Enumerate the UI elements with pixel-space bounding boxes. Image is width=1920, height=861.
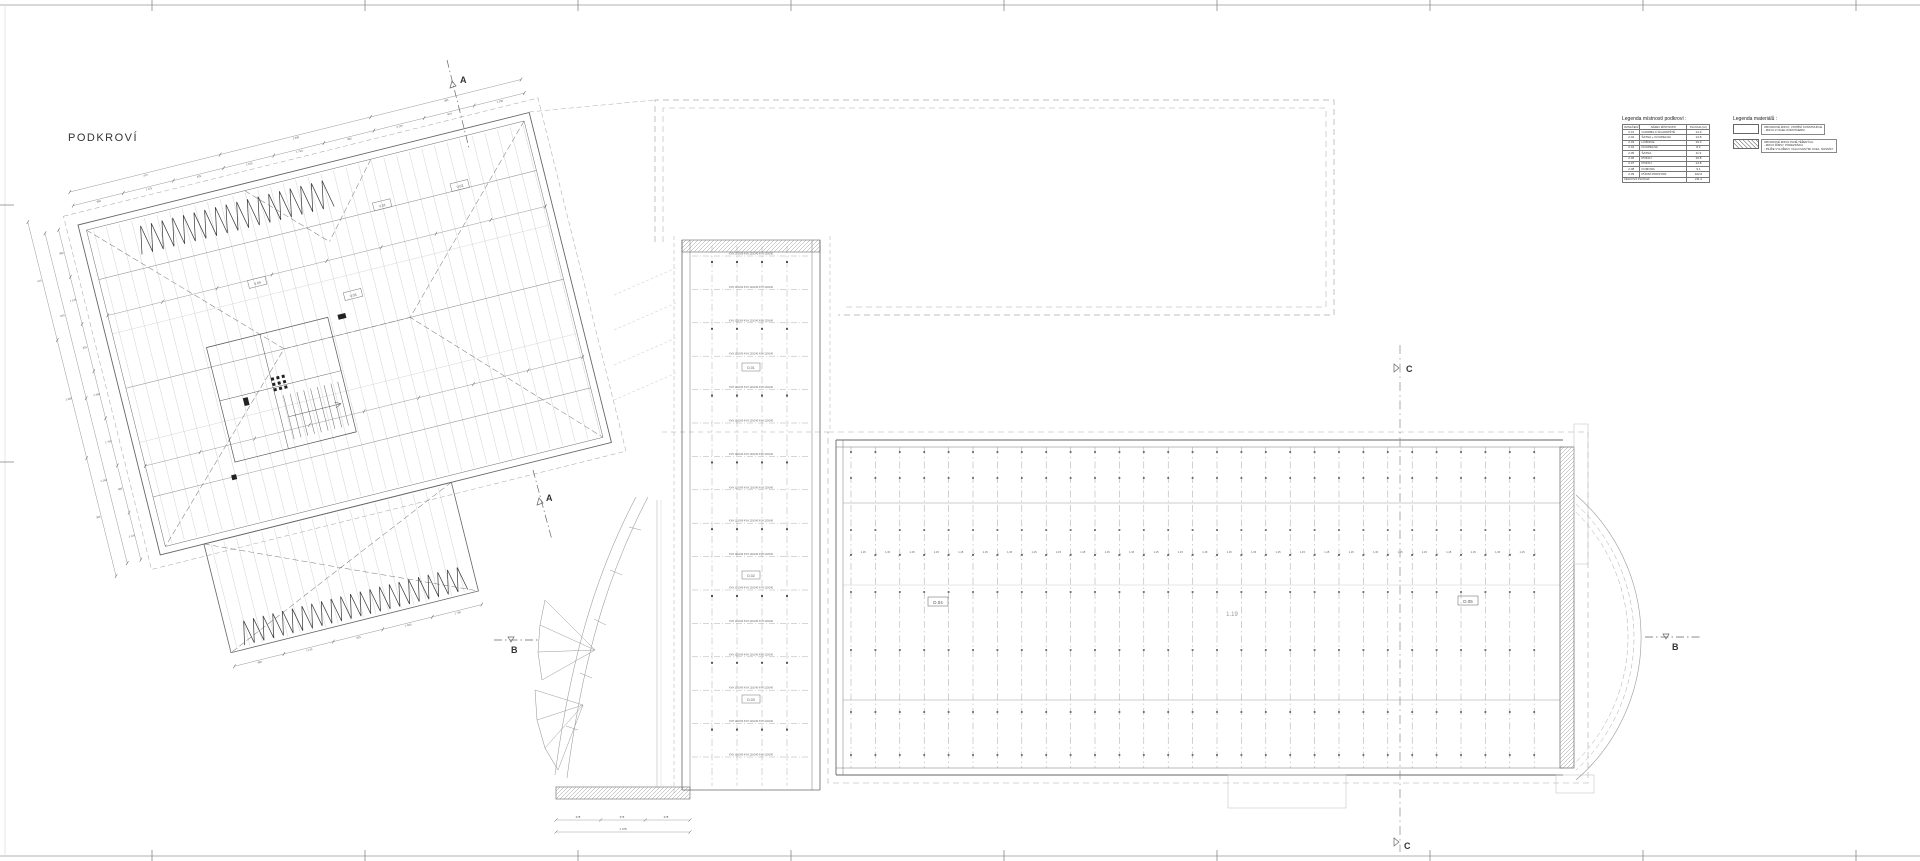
hatch-line xyxy=(1560,701,1574,715)
bay-rung xyxy=(594,619,606,625)
axis-node xyxy=(875,477,877,479)
beam-mark-d05: D.05 xyxy=(1463,599,1473,604)
dim-text: 625 xyxy=(356,635,362,640)
junction-line xyxy=(614,268,676,295)
hatch-line xyxy=(1560,665,1574,679)
section-a-label-mid: A xyxy=(546,493,553,503)
joist-label: KVH 120/240 KVH 120/240 KVH 120/240 xyxy=(729,253,774,256)
axis-node xyxy=(899,591,901,593)
axis-node xyxy=(1070,529,1072,531)
spacing-dim: 1,15 xyxy=(1080,550,1086,554)
hatch-line xyxy=(1560,549,1574,563)
axis-node xyxy=(850,451,852,453)
axis-node xyxy=(736,328,738,330)
material-description-line: - PILÍŘE VYLOŽENY VÁLCOVANÝMI OCEL. NOSN… xyxy=(1764,148,1834,151)
axis-node xyxy=(1216,711,1218,713)
hatch-line xyxy=(1560,449,1574,463)
hatch-line xyxy=(1560,517,1574,531)
hatch-line xyxy=(1571,765,1574,768)
axis-node xyxy=(1045,649,1047,651)
axis-node xyxy=(972,649,974,651)
axis-node xyxy=(1241,529,1243,531)
axis-node xyxy=(1363,477,1365,479)
hatch-line xyxy=(1560,617,1574,631)
spacing-dim: 1,15 xyxy=(861,550,867,554)
bay-rung xyxy=(629,527,641,530)
hatch-line xyxy=(1560,601,1574,615)
axis-node xyxy=(1119,649,1121,651)
axis-node xyxy=(850,754,852,756)
axis-node xyxy=(1338,477,1340,479)
bottom-dim-total: 1 378 xyxy=(620,827,627,831)
hatch-line xyxy=(1560,605,1574,619)
dim-tick xyxy=(282,652,286,656)
axis-node xyxy=(1363,649,1365,651)
material-description: OBVODOVÉ ZDIVO PLNĚ TĚŽENÝCH- ZDIVO ŘÍMS… xyxy=(1761,139,1837,153)
axis-node xyxy=(1094,754,1096,756)
spacing-dim: 1,15 xyxy=(1129,550,1135,554)
axis-node xyxy=(786,461,788,463)
hatch-line xyxy=(1560,721,1574,735)
junction-line xyxy=(614,373,676,400)
joist-label: KVH 120/240 KVH 120/240 KVH 120/240 xyxy=(729,754,774,757)
dim-text: 980 xyxy=(96,199,102,204)
grid-dot xyxy=(277,381,281,385)
axis-node xyxy=(1241,451,1243,453)
rafter xyxy=(312,519,338,624)
hatch-line xyxy=(1560,553,1574,567)
apse-end xyxy=(1576,495,1641,780)
hatch-line xyxy=(1560,593,1574,607)
dim-tick xyxy=(430,615,434,619)
axis-node xyxy=(1021,477,1023,479)
joist-label: KVH 120/240 KVH 120/240 KVH 120/240 xyxy=(729,553,774,556)
axis-node xyxy=(997,649,999,651)
axis-node xyxy=(1192,477,1194,479)
axis-node xyxy=(1533,649,1535,651)
bay-curve xyxy=(538,600,545,680)
axis-node xyxy=(1387,649,1389,651)
axis-node xyxy=(1387,591,1389,593)
section-b-label-left: B xyxy=(511,645,518,655)
axis-node xyxy=(923,649,925,651)
terrace-below xyxy=(1228,775,1346,808)
axis-node xyxy=(1265,754,1267,756)
dim-tick xyxy=(480,603,484,607)
hatch-line xyxy=(1560,725,1574,739)
axis-node xyxy=(1485,711,1487,713)
hatch-line xyxy=(1560,473,1574,487)
dim-tick xyxy=(68,275,72,279)
dim-tick xyxy=(369,115,373,119)
axis-node xyxy=(997,754,999,756)
hatch-line xyxy=(1560,513,1574,527)
axis-node xyxy=(1533,529,1535,531)
axis-node xyxy=(786,328,788,330)
section-a-line-top xyxy=(447,60,469,148)
hatch-line xyxy=(1560,461,1574,475)
hatch-line xyxy=(1560,633,1574,647)
axis-node xyxy=(1143,591,1145,593)
axis-node xyxy=(736,261,738,263)
curved-stair-bay xyxy=(535,497,661,788)
axis-node xyxy=(1216,754,1218,756)
axis-node xyxy=(923,477,925,479)
hatch-line xyxy=(1560,501,1574,515)
joist-label: KVH 120/240 KVH 120/240 KVH 120/240 xyxy=(729,587,774,590)
axis-node xyxy=(1387,477,1389,479)
axis-node xyxy=(1021,451,1023,453)
axis-node xyxy=(1289,711,1291,713)
axis-node xyxy=(1289,649,1291,651)
axis-node xyxy=(850,477,852,479)
axis-node xyxy=(850,529,852,531)
axis-node xyxy=(1167,591,1169,593)
dim-tick xyxy=(417,396,421,400)
hatch-line xyxy=(1560,645,1574,659)
beam-mark-d04: D.04 xyxy=(933,600,943,605)
axis-node xyxy=(923,711,925,713)
hatch-line xyxy=(1560,585,1574,599)
hatch-line xyxy=(1560,577,1574,591)
dim-tick xyxy=(422,116,426,120)
section-b-label-right: B xyxy=(1672,642,1679,652)
axis-node xyxy=(948,451,950,453)
axis-node xyxy=(1265,711,1267,713)
hatch-line xyxy=(682,240,686,244)
dim-text: 475 xyxy=(143,173,149,178)
hatch-line xyxy=(1560,497,1574,511)
axis-node xyxy=(1143,477,1145,479)
dim-tick xyxy=(26,220,30,224)
rafter xyxy=(375,503,401,608)
hatch-line xyxy=(1560,457,1574,471)
wall-band xyxy=(682,240,820,252)
axis-node xyxy=(1314,649,1316,651)
joist-label: KVH 120/240 KVH 120/240 KVH 120/240 xyxy=(729,720,774,723)
axis-node xyxy=(1289,451,1291,453)
hatch-line xyxy=(1560,689,1574,703)
axis-node xyxy=(1436,451,1438,453)
plan-strip-junction xyxy=(529,100,676,400)
section-markers: A A B B C C xyxy=(447,60,1700,852)
dim-tick xyxy=(325,259,329,263)
dim-tick xyxy=(522,91,526,95)
axis-node xyxy=(1143,711,1145,713)
axis-node xyxy=(1094,477,1096,479)
dim-text: 900 xyxy=(117,486,123,491)
bottom-dim: 278 xyxy=(664,815,669,819)
axis-node xyxy=(736,528,738,530)
element-mark: D.03 xyxy=(747,698,754,702)
dim-tick xyxy=(80,322,84,326)
axis-node xyxy=(1070,649,1072,651)
axis-node xyxy=(1363,591,1365,593)
axis-node xyxy=(899,711,901,713)
section-c-label-bottom: C xyxy=(1404,841,1411,851)
element-mark: V.02 xyxy=(456,184,464,190)
fan-line xyxy=(535,690,583,705)
axis-node xyxy=(923,754,925,756)
dim-text: 2 450 xyxy=(245,161,253,167)
axis-node xyxy=(1411,711,1413,713)
axis-node xyxy=(711,328,713,330)
chimney-block xyxy=(243,397,250,406)
rafter xyxy=(438,488,464,593)
axis-node xyxy=(1387,529,1389,531)
dim-tick xyxy=(57,228,61,232)
axis-node xyxy=(997,477,999,479)
axis-node xyxy=(1289,529,1291,531)
hatch-line xyxy=(1560,673,1574,687)
rafter xyxy=(413,494,439,599)
axis-node xyxy=(1045,711,1047,713)
spacing-dim: 1,15 xyxy=(1251,550,1257,554)
stair-step xyxy=(324,385,335,429)
junction-line xyxy=(614,338,676,365)
dim-line xyxy=(234,605,481,667)
roof-dashed-boundary xyxy=(828,432,1588,783)
dim-text: 1 125 xyxy=(305,647,313,653)
apse-arc-mid xyxy=(1576,504,1634,770)
axis-node xyxy=(1460,451,1462,453)
axis-node xyxy=(948,529,950,531)
dashed-outline-upper-floor xyxy=(655,100,1334,432)
axis-node xyxy=(1509,591,1511,593)
dim-tick xyxy=(43,231,47,235)
hip-line xyxy=(245,174,330,259)
hatch-line xyxy=(1560,545,1574,559)
axis-node xyxy=(1241,649,1243,651)
axis-node xyxy=(1192,529,1194,531)
axis-node xyxy=(1314,591,1316,593)
axis-node xyxy=(948,711,950,713)
hatch-line xyxy=(1560,749,1574,763)
dim-tick xyxy=(161,300,165,304)
legend-materials-title: Legenda materiálů : xyxy=(1733,116,1853,122)
bottom-dim: 278 xyxy=(576,815,581,819)
axis-node xyxy=(1411,754,1413,756)
axis-node xyxy=(786,595,788,597)
hatch-line xyxy=(1560,697,1574,711)
hatch-line xyxy=(1560,557,1574,571)
axis-node xyxy=(1241,754,1243,756)
axis-node xyxy=(1045,451,1047,453)
axis-node xyxy=(899,529,901,531)
hatch-line xyxy=(1560,713,1574,727)
axis-node xyxy=(1338,529,1340,531)
element-mark: V.04 xyxy=(254,281,262,287)
axis-node xyxy=(1021,711,1023,713)
hip-line xyxy=(313,159,388,241)
hatch-line xyxy=(1560,737,1574,751)
axis-node xyxy=(1387,754,1389,756)
stair-step xyxy=(338,382,349,426)
dim-tick xyxy=(489,218,493,222)
axis-node xyxy=(1436,529,1438,531)
hatch-line xyxy=(1560,641,1574,655)
bay-curve xyxy=(555,497,636,775)
dim-tick xyxy=(68,190,72,194)
dim-tick xyxy=(381,627,385,631)
room-number-right: 1.19 xyxy=(1226,612,1238,618)
bay-rung xyxy=(610,570,622,575)
axis-node xyxy=(1192,649,1194,651)
attic-plan-rotated: V.01V.02V.03V.049801 1256252 4501 750900… xyxy=(17,75,655,694)
axis-node xyxy=(899,754,901,756)
axis-node xyxy=(1021,529,1023,531)
hatch-line xyxy=(1560,653,1574,667)
axis-node xyxy=(1119,711,1121,713)
axis-node xyxy=(1094,649,1096,651)
axis-node xyxy=(1460,711,1462,713)
dim-tick xyxy=(127,511,131,515)
axis-node xyxy=(1338,649,1340,651)
axis-node xyxy=(1143,754,1145,756)
dim-tick xyxy=(143,464,147,468)
dim-tick xyxy=(92,369,96,373)
joist-label: KVH 120/240 KVH 120/240 KVH 120/240 xyxy=(729,286,774,289)
dim-tick xyxy=(379,245,383,249)
axis-node xyxy=(972,591,974,593)
dim-text: 1 250 xyxy=(100,478,108,484)
spacing-dim: 1,15 xyxy=(1519,550,1525,554)
end-ledge xyxy=(1574,424,1588,564)
axis-node xyxy=(1485,649,1487,651)
axis-node xyxy=(1192,754,1194,756)
axis-node xyxy=(1509,529,1511,531)
joist-label: KVH 120/240 KVH 120/240 KVH 120/240 xyxy=(729,353,774,356)
dim-tick xyxy=(85,456,89,460)
legend-rooms: Legenda místností podkroví : OZNAČENÍNÁZ… xyxy=(1622,116,1712,183)
dim-text: 1 750 xyxy=(454,610,462,616)
joist-label: KVH 120/240 KVH 120/240 KVH 120/240 xyxy=(729,420,774,423)
axis-node xyxy=(972,754,974,756)
hatch-line xyxy=(1560,477,1574,491)
hatch-line xyxy=(1560,521,1574,535)
stair-step xyxy=(317,387,328,431)
spacing-dim: 1,15 xyxy=(1422,550,1428,554)
axis-node xyxy=(1241,477,1243,479)
hatch-line xyxy=(1560,537,1574,551)
axis-node xyxy=(1216,529,1218,531)
hatch-line xyxy=(1560,453,1574,467)
fan-line xyxy=(540,625,595,650)
axis-node xyxy=(1216,591,1218,593)
dim-text: 1 125 xyxy=(145,186,153,192)
fan-line xyxy=(545,600,595,650)
dim-tick xyxy=(307,423,311,427)
axis-node xyxy=(875,711,877,713)
material-description-line: - ZDIVO Z CIHEL POROTHERM xyxy=(1764,129,1822,132)
dim-tick xyxy=(472,382,476,386)
hip-line xyxy=(284,317,410,348)
hatch-line xyxy=(1560,693,1574,707)
section-c-flag-bottom xyxy=(1394,838,1399,846)
rafter xyxy=(350,510,376,615)
dim-text: 980 xyxy=(59,251,65,256)
axis-node xyxy=(1533,591,1535,593)
dim-text: 625 xyxy=(82,345,88,350)
fan-line xyxy=(558,705,583,770)
dim-tick xyxy=(198,450,202,454)
hatch-line xyxy=(1560,669,1574,683)
dim-text: 1 125 xyxy=(69,297,77,303)
dim-tick xyxy=(218,153,222,157)
axis-node xyxy=(972,451,974,453)
dim-text: 625 xyxy=(196,174,202,179)
axis-node xyxy=(1119,451,1121,453)
future-outline-outer xyxy=(655,100,1334,315)
hatch-line xyxy=(1560,561,1574,575)
axis-node xyxy=(1167,529,1169,531)
axis-node xyxy=(1436,591,1438,593)
chimney-block xyxy=(337,313,346,320)
material-item: OBVODOVÉ ZDIVO, VNITŘNÍ KONSTRUKCE- ZDIV… xyxy=(1733,124,1853,135)
axis-node xyxy=(1485,451,1487,453)
dim-tick xyxy=(106,314,110,318)
axis-node xyxy=(761,662,763,664)
section-b-flag-left xyxy=(508,637,514,642)
dim-tick xyxy=(171,179,175,183)
bay-curve xyxy=(535,690,558,770)
axis-node xyxy=(899,649,901,651)
material-item: OBVODOVÉ ZDIVO PLNĚ TĚŽENÝCH- ZDIVO ŘÍMS… xyxy=(1733,139,1853,153)
axis-node xyxy=(711,395,713,397)
axis-node xyxy=(1021,649,1023,651)
hatch-line xyxy=(1560,447,1568,455)
stair-step xyxy=(283,395,294,439)
spacing-dim: 1,15 xyxy=(1349,550,1355,554)
axis-node xyxy=(875,754,877,756)
element-mark: V.03 xyxy=(349,293,357,299)
dim-tick xyxy=(121,191,125,195)
axis-node xyxy=(1363,529,1365,531)
axis-node xyxy=(1119,591,1121,593)
hatch-line xyxy=(1560,465,1574,479)
spacing-dim: 1,15 xyxy=(1495,550,1501,554)
hatch-line xyxy=(1560,661,1574,675)
bay-curve xyxy=(567,497,648,778)
joist-label: KVH 120/240 KVH 120/240 KVH 120/240 xyxy=(729,386,774,389)
axis-node xyxy=(736,729,738,731)
hatch-line xyxy=(1560,621,1574,635)
spacing-dim: 1,15 xyxy=(1446,550,1452,554)
axis-node xyxy=(1533,477,1535,479)
axis-node xyxy=(1411,451,1413,453)
axis-node xyxy=(711,528,713,530)
axis-node xyxy=(1387,451,1389,453)
rooms-table: OZNAČENÍNÁZEV MÍSTNOSTIPLOCHA [m²]2.01CH… xyxy=(1622,124,1710,183)
axis-node xyxy=(1192,451,1194,453)
axis-node xyxy=(948,477,950,479)
joist-label: KVH 120/240 KVH 120/240 KVH 120/240 xyxy=(729,620,774,623)
hatch-line xyxy=(556,787,560,791)
axis-node xyxy=(1241,711,1243,713)
dim-tick xyxy=(272,154,276,158)
stair-step xyxy=(304,390,315,434)
axis-node xyxy=(1045,591,1047,593)
axis-node xyxy=(1265,529,1267,531)
hatched-swatch xyxy=(1733,139,1759,149)
legend-materials: Legenda materiálů : OBVODOVÉ ZDIVO, VNIT… xyxy=(1733,116,1853,157)
axis-node xyxy=(1338,591,1340,593)
spacing-dim: 1,15 xyxy=(885,550,891,554)
spacing-dim: 1,15 xyxy=(1471,550,1477,554)
axis-node xyxy=(1411,477,1413,479)
dim-text: 3 125 xyxy=(128,533,136,539)
axis-node xyxy=(1460,591,1462,593)
